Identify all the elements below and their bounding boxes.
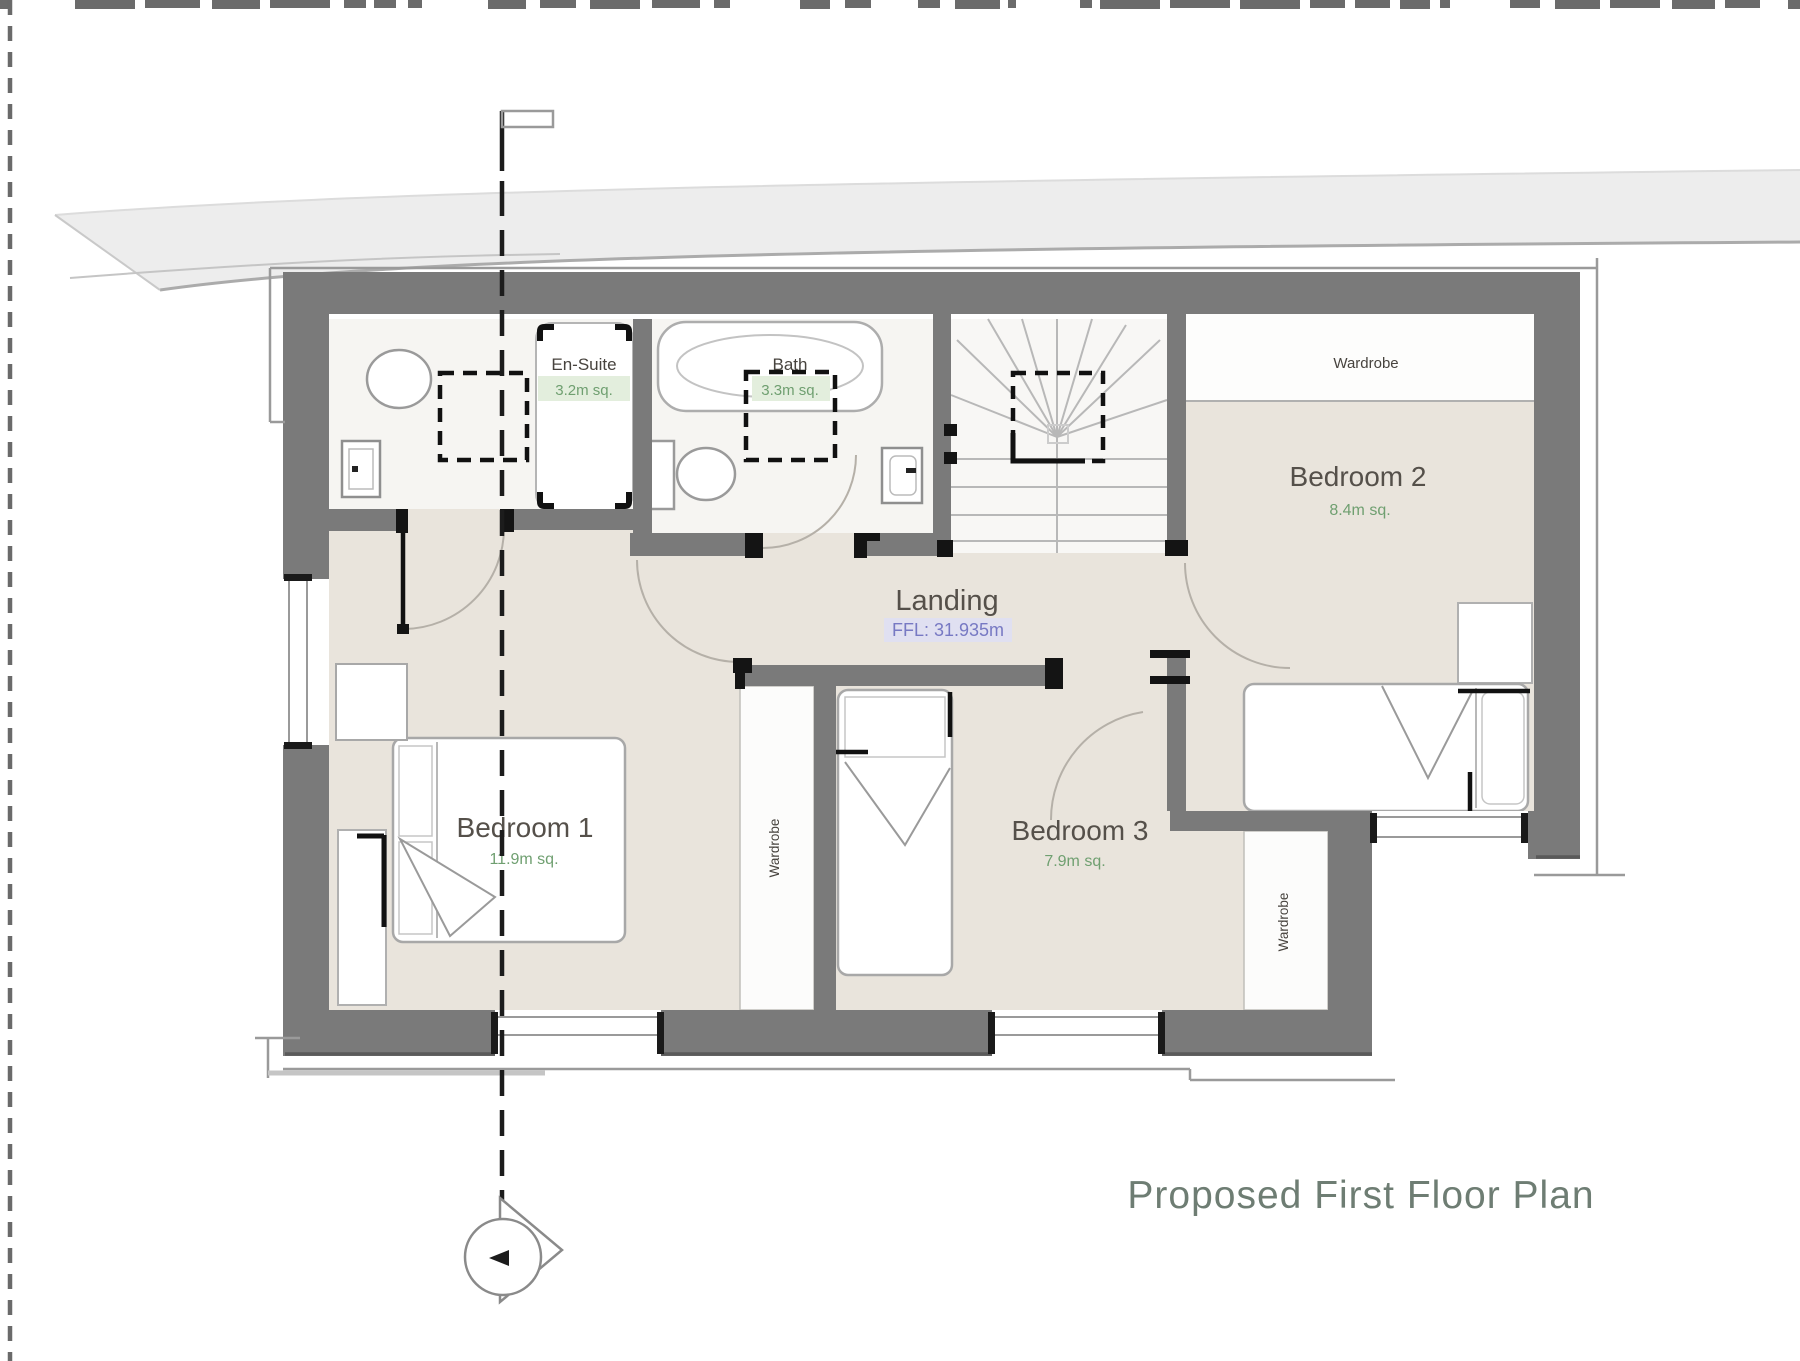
svg-text:Wardrobe: Wardrobe <box>1276 893 1291 952</box>
svg-text:Wardrobe: Wardrobe <box>1333 355 1398 372</box>
svg-text:3.2m sq.: 3.2m sq. <box>555 382 613 399</box>
svg-text:Bedroom 3: Bedroom 3 <box>1012 815 1149 846</box>
svg-text:Wardrobe: Wardrobe <box>767 819 782 878</box>
svg-text:Landing: Landing <box>895 585 998 617</box>
svg-text:Bedroom 2: Bedroom 2 <box>1290 461 1427 492</box>
svg-text:8.4m sq.: 8.4m sq. <box>1329 502 1390 519</box>
svg-text:Bath: Bath <box>773 355 808 374</box>
svg-text:3.3m sq.: 3.3m sq. <box>761 382 819 399</box>
svg-text:7.9m sq.: 7.9m sq. <box>1044 853 1105 870</box>
svg-text:Proposed First Floor Plan: Proposed First Floor Plan <box>1127 1174 1594 1217</box>
svg-text:FFL: 31.935m: FFL: 31.935m <box>892 620 1004 640</box>
svg-text:En-Suite: En-Suite <box>551 355 616 374</box>
svg-text:Bedroom 1: Bedroom 1 <box>457 812 594 843</box>
